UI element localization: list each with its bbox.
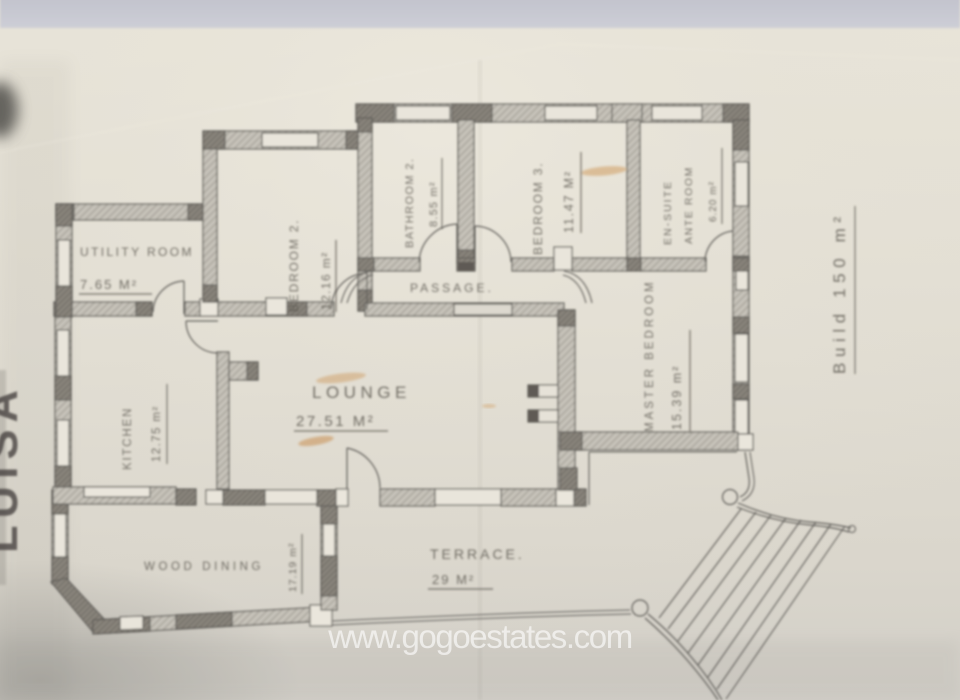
svg-text:TERRACE.: TERRACE. xyxy=(430,546,525,562)
svg-text:BEDROOM 2.: BEDROOM 2. xyxy=(287,219,301,312)
svg-text:27.51 M²: 27.51 M² xyxy=(296,413,375,430)
svg-text:11.47 M²: 11.47 M² xyxy=(562,170,576,233)
svg-text:BEDROOM 3.: BEDROOM 3. xyxy=(531,162,545,255)
svg-text:www.gogoestates.com: www.gogoestates.com xyxy=(327,618,632,655)
svg-text:WOOD DINING: WOOD DINING xyxy=(144,561,264,573)
svg-text:6.20 m²: 6.20 m² xyxy=(708,181,719,222)
svg-text:BATHROOM 2.: BATHROOM 2. xyxy=(404,158,416,248)
svg-text:17.19 m²: 17.19 m² xyxy=(287,543,299,592)
svg-text:29 M²: 29 M² xyxy=(432,572,475,587)
svg-text:PASSAGE.: PASSAGE. xyxy=(410,281,494,295)
svg-text:UTILITY ROOM: UTILITY ROOM xyxy=(80,245,194,259)
svg-text:KITCHEN: KITCHEN xyxy=(122,407,134,470)
svg-text:8.55 m²: 8.55 m² xyxy=(428,181,440,227)
svg-text:EN-SUITE: EN-SUITE xyxy=(662,180,674,245)
svg-text:12.16 m²: 12.16 m² xyxy=(319,251,333,310)
svg-text:15.39 m²: 15.39 m² xyxy=(670,365,684,430)
svg-text:ANTE ROOM: ANTE ROOM xyxy=(683,166,695,244)
svg-text:MASTER BEDROOM: MASTER BEDROOM xyxy=(644,279,656,432)
svg-text:LUISA: LUISA xyxy=(0,383,27,553)
svg-text:12.75 m²: 12.75 m² xyxy=(151,405,163,462)
svg-text:7.65 M²: 7.65 M² xyxy=(80,277,138,292)
svg-text:Build 150 m²: Build 150 m² xyxy=(830,211,849,374)
svg-text:LOUNGE: LOUNGE xyxy=(312,383,411,402)
